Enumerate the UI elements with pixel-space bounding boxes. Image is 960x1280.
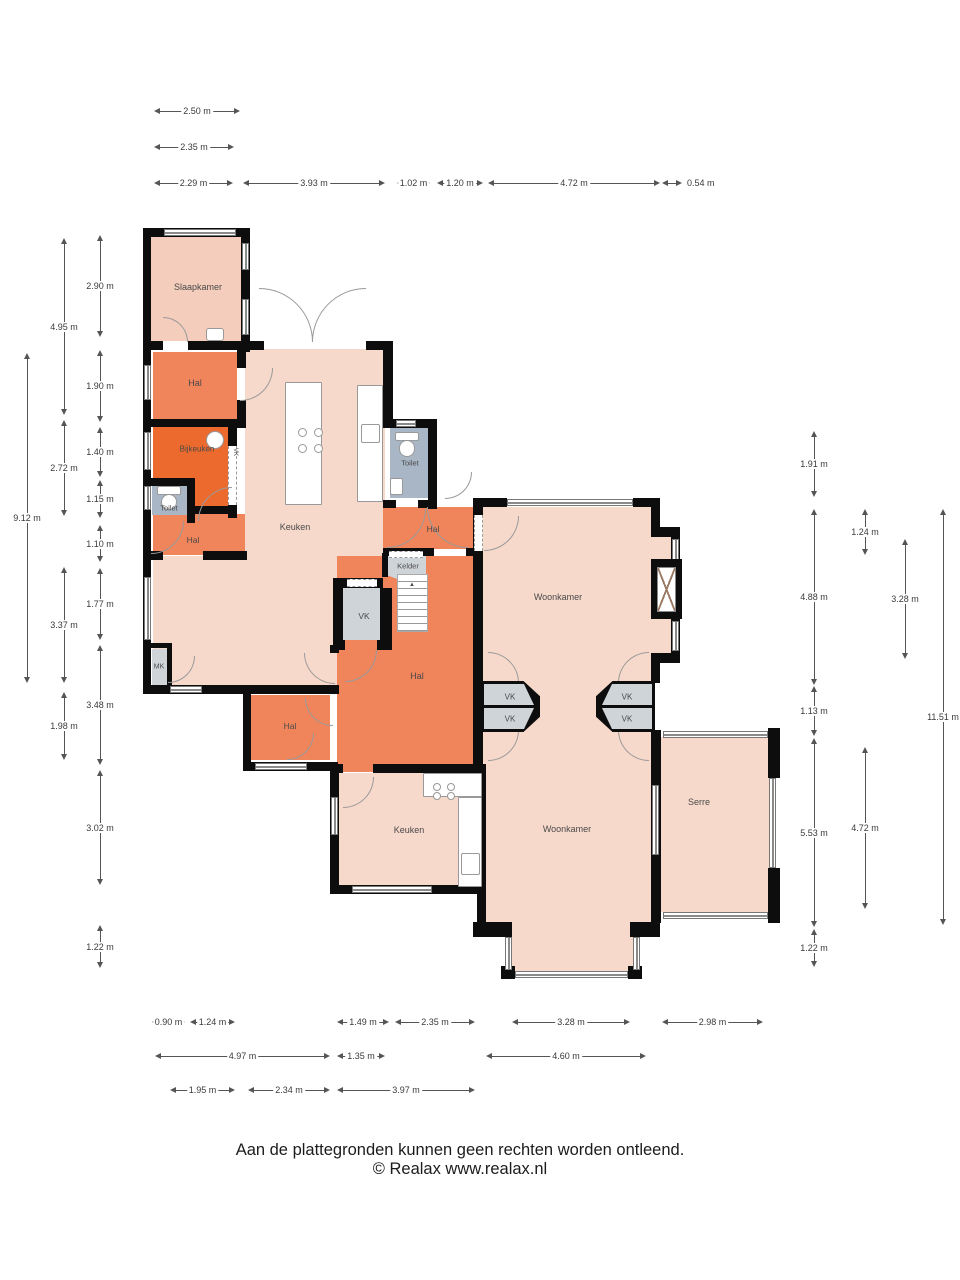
room-label: Hal xyxy=(284,721,297,731)
dimension: 1.98 m xyxy=(59,692,69,760)
dimension-label: 1.91 m xyxy=(798,459,830,469)
room-label: VK xyxy=(505,693,516,702)
room-label: Serre xyxy=(688,797,710,807)
window xyxy=(164,229,236,236)
arrow xyxy=(811,738,817,744)
arrow xyxy=(811,509,817,515)
room-label: Woonkamer xyxy=(543,824,591,834)
arrow xyxy=(811,921,817,927)
dimension-label: 1.24 m xyxy=(197,1017,229,1027)
arrow xyxy=(227,180,233,186)
floor-plan-page: SlaapkamerHalBijkeukenToiletHalKeukenVKT… xyxy=(0,0,960,1280)
arrow xyxy=(61,409,67,415)
room-label: VK xyxy=(622,693,633,702)
wall xyxy=(243,693,251,770)
room-label: Hal xyxy=(427,524,440,534)
door-arc xyxy=(259,288,313,342)
arrow xyxy=(940,919,946,925)
arrow xyxy=(862,747,868,753)
stove-burner xyxy=(298,428,307,437)
dimension-label: 1.20 m xyxy=(444,178,476,188)
wall xyxy=(143,419,245,427)
arrow xyxy=(97,331,103,337)
arrow xyxy=(811,929,817,935)
stove-burner xyxy=(433,783,441,791)
arrow xyxy=(654,180,660,186)
wall xyxy=(330,764,343,773)
arrow xyxy=(97,568,103,574)
arrow xyxy=(229,1019,235,1025)
dimension: 1.13 m xyxy=(809,686,819,736)
dimension: 1.02 m xyxy=(397,178,430,188)
copyright-text: © Realax www.realax.nl xyxy=(0,1160,920,1179)
arrow xyxy=(61,510,67,516)
dashed-opening xyxy=(474,515,483,551)
wall xyxy=(477,893,486,923)
wall xyxy=(651,663,660,683)
wall xyxy=(228,427,237,446)
arrow xyxy=(662,1019,668,1025)
dimension-label: 0.90 m xyxy=(153,1017,185,1027)
dimension: 0.90 m xyxy=(152,1017,185,1027)
dimension-label: 1.77 m xyxy=(84,599,116,609)
dimension: 1.91 m xyxy=(809,431,819,497)
arrow xyxy=(61,677,67,683)
dimension: 2.29 m xyxy=(154,178,233,188)
dimension-label: 2.29 m xyxy=(178,178,210,188)
dimension-label: 2.50 m xyxy=(181,106,213,116)
dimension-label: 3.48 m xyxy=(84,700,116,710)
dimension: 3.37 m xyxy=(59,567,69,683)
arrow xyxy=(154,144,160,150)
arrow xyxy=(940,509,946,515)
arrow xyxy=(337,1053,343,1059)
arrow xyxy=(324,1053,330,1059)
arrow xyxy=(437,180,443,186)
sink-slaapkamer xyxy=(206,328,224,341)
fireplace-inner xyxy=(657,567,676,612)
window xyxy=(242,299,249,335)
room-label: Toilet xyxy=(401,459,419,468)
arrow xyxy=(97,480,103,486)
arrow xyxy=(61,692,67,698)
arrow xyxy=(676,180,682,186)
dimension-label: 1.10 m xyxy=(84,539,116,549)
arrow xyxy=(97,512,103,518)
arrow xyxy=(512,1019,518,1025)
dimension-label: 3.97 m xyxy=(390,1085,422,1095)
dimension-label: 4.88 m xyxy=(798,592,830,602)
dimension: 3.48 m xyxy=(95,645,105,765)
arrow xyxy=(337,1019,343,1025)
arrow xyxy=(170,1087,176,1093)
dashed-opening xyxy=(389,551,423,558)
window xyxy=(505,937,512,970)
arrow xyxy=(469,1019,475,1025)
arrow xyxy=(811,679,817,685)
window xyxy=(144,432,151,470)
dimension: 1.49 m xyxy=(337,1017,389,1027)
dimension: 2.50 m xyxy=(154,106,240,116)
dimension-label: 0.54 m xyxy=(685,178,717,188)
dimension-label: 4.72 m xyxy=(849,823,881,833)
wall xyxy=(768,868,780,923)
room-label: Keuken xyxy=(394,825,425,835)
dimension: 4.72 m xyxy=(860,747,870,909)
dimension-label: 3.28 m xyxy=(889,594,921,604)
arrow xyxy=(395,1019,401,1025)
arrow xyxy=(97,350,103,356)
dimension: 1.24 m xyxy=(190,1017,235,1027)
room-label: Kelder xyxy=(397,562,419,571)
dimension: 1.22 m xyxy=(95,925,105,968)
window xyxy=(515,971,628,978)
stove-burner xyxy=(298,444,307,453)
window xyxy=(144,365,151,400)
arrow xyxy=(902,653,908,659)
room-label: VK xyxy=(358,611,369,621)
wall xyxy=(377,640,392,650)
room-label: VK xyxy=(505,715,516,724)
wall xyxy=(383,341,393,428)
room-label: Toilet xyxy=(160,504,178,513)
dimension: 1.15 m xyxy=(95,480,105,518)
arrow xyxy=(337,1087,343,1093)
dashed-opening xyxy=(347,579,377,587)
arrow xyxy=(811,730,817,736)
arrow xyxy=(469,1087,475,1093)
window xyxy=(144,577,151,640)
dimension-label: 3.93 m xyxy=(298,178,330,188)
arrow xyxy=(190,1019,196,1025)
arrow xyxy=(862,509,868,515)
dimension-label: 2.72 m xyxy=(48,463,80,473)
wall xyxy=(473,556,483,772)
room-fill-erker xyxy=(509,925,633,972)
dimension-label: 2.90 m xyxy=(84,281,116,291)
stove-burner xyxy=(433,792,441,800)
counter-keuken-boven xyxy=(357,385,383,502)
vk-pod-left xyxy=(481,681,540,732)
dimension: 4.60 m xyxy=(486,1051,646,1061)
arrow xyxy=(97,471,103,477)
dimension-label: 3.02 m xyxy=(84,823,116,833)
arrow xyxy=(379,180,385,186)
arrow xyxy=(379,1053,385,1059)
door-arc xyxy=(445,472,472,499)
window xyxy=(331,797,338,835)
dimension-label: 4.97 m xyxy=(227,1051,259,1061)
dimension: 3.97 m xyxy=(337,1085,475,1095)
dimension: 2.35 m xyxy=(395,1017,475,1027)
wall xyxy=(651,527,680,537)
dimension-label: 3.37 m xyxy=(48,620,80,630)
arrow xyxy=(757,1019,763,1025)
room-label: Hal xyxy=(410,671,424,681)
room-label: MK xyxy=(154,664,165,671)
dimension: 4.97 m xyxy=(155,1051,330,1061)
arrow xyxy=(97,416,103,422)
window xyxy=(633,937,640,970)
dimension: 2.90 m xyxy=(95,235,105,337)
sink-keuken-boven xyxy=(361,424,380,443)
wall xyxy=(382,553,388,577)
wc-bowl-toilet2 xyxy=(399,440,415,457)
dimension-label: 1.35 m xyxy=(345,1051,377,1061)
room-label: Woonkamer xyxy=(534,592,582,602)
room-label: Hal xyxy=(187,535,200,545)
arrow xyxy=(97,759,103,765)
arrow xyxy=(97,427,103,433)
stove-burner xyxy=(447,792,455,800)
wall xyxy=(250,341,264,350)
dimension: 1.24 m xyxy=(860,509,870,555)
wall xyxy=(187,478,195,523)
room-fill-serre xyxy=(660,737,770,912)
dimension-label: 1.13 m xyxy=(798,706,830,716)
wall xyxy=(768,728,780,778)
dimension-label: 2.35 m xyxy=(419,1017,451,1027)
room-label: VK xyxy=(232,448,238,456)
window xyxy=(255,763,307,770)
arrow xyxy=(229,1087,235,1093)
arrow xyxy=(862,549,868,555)
arrow xyxy=(662,180,668,186)
wall xyxy=(474,498,507,507)
window xyxy=(242,243,249,270)
dimension-label: 1.02 m xyxy=(398,178,430,188)
arrow xyxy=(228,144,234,150)
window xyxy=(396,420,416,427)
room-label: ▲ xyxy=(409,582,415,588)
window xyxy=(663,912,768,919)
arrow xyxy=(97,525,103,531)
arrow xyxy=(61,567,67,573)
dimension: 1.40 m xyxy=(95,427,105,477)
wall xyxy=(203,551,247,560)
arrow xyxy=(154,108,160,114)
arrow xyxy=(488,180,494,186)
arrow xyxy=(61,420,67,426)
arrow xyxy=(234,108,240,114)
arrow xyxy=(97,770,103,776)
dimension-label: 1.98 m xyxy=(48,721,80,731)
wall xyxy=(143,341,163,350)
arrow xyxy=(61,754,67,760)
dimension: 2.34 m xyxy=(248,1085,330,1095)
arrow xyxy=(811,431,817,437)
dimension-label: 1.90 m xyxy=(84,381,116,391)
wall xyxy=(143,228,151,352)
wall xyxy=(373,764,483,773)
dimension-label: 4.72 m xyxy=(558,178,590,188)
arrow xyxy=(811,491,817,497)
arrow xyxy=(97,962,103,968)
dimension: 11.51 m xyxy=(938,509,948,925)
dimension: 1.90 m xyxy=(95,350,105,422)
dimension: 3.02 m xyxy=(95,770,105,885)
room-label: VK xyxy=(622,715,633,724)
arrow xyxy=(24,677,30,683)
wall xyxy=(383,500,396,508)
arrow xyxy=(97,235,103,241)
arrow xyxy=(97,879,103,885)
arrow xyxy=(486,1053,492,1059)
arrow xyxy=(97,634,103,640)
arrow xyxy=(811,961,817,967)
dimension-label: 1.95 m xyxy=(187,1085,219,1095)
window xyxy=(352,886,432,893)
dimension: 4.72 m xyxy=(488,178,660,188)
arrow xyxy=(640,1053,646,1059)
dimension-label: 2.98 m xyxy=(697,1017,729,1027)
stove-burner xyxy=(314,428,323,437)
vk-pod-right xyxy=(596,681,655,732)
dimension: 2.35 m xyxy=(154,142,234,152)
arrow xyxy=(248,1087,254,1093)
wall xyxy=(330,685,339,693)
arrow xyxy=(97,925,103,931)
arrow xyxy=(243,180,249,186)
wall xyxy=(473,922,512,937)
window xyxy=(144,486,151,510)
dimension-label: 2.35 m xyxy=(178,142,210,152)
wall xyxy=(143,352,151,692)
arrow xyxy=(477,180,483,186)
dimension: 1.10 m xyxy=(95,525,105,562)
arrow xyxy=(902,539,908,545)
dimension: 1.35 m xyxy=(337,1051,385,1061)
window xyxy=(769,778,776,868)
wall xyxy=(330,645,339,653)
dimension-label: 4.60 m xyxy=(550,1051,582,1061)
arrow xyxy=(97,645,103,651)
arrow xyxy=(624,1019,630,1025)
dimension: 5.53 m xyxy=(809,738,819,927)
dimension: 0.54 m xyxy=(662,178,682,188)
dimension: 3.28 m xyxy=(900,539,910,659)
dimension: 3.93 m xyxy=(243,178,385,188)
sink-keuken-beneden xyxy=(461,853,480,875)
arrow xyxy=(155,1053,161,1059)
room-label: Slaapkamer xyxy=(174,282,222,292)
stove-burner xyxy=(314,444,323,453)
wall xyxy=(428,419,437,509)
dimension-label: 1.24 m xyxy=(849,527,881,537)
dimension-label: 4.95 m xyxy=(48,322,80,332)
dimension: 9.12 m xyxy=(22,353,32,683)
room-label: Keuken xyxy=(280,522,311,532)
wall xyxy=(651,653,680,663)
dimension-label: 1.49 m xyxy=(347,1017,379,1027)
dimension: 2.72 m xyxy=(59,420,69,516)
window xyxy=(663,731,768,738)
dimension: 1.95 m xyxy=(170,1085,235,1095)
dimension-label: 2.34 m xyxy=(273,1085,305,1095)
door-arc xyxy=(312,288,366,342)
arrow xyxy=(154,180,160,186)
arrow xyxy=(97,556,103,562)
dimension: 2.98 m xyxy=(662,1017,763,1027)
dimension-label: 1.40 m xyxy=(84,447,116,457)
dimension-label: 1.22 m xyxy=(798,943,830,953)
dimension-label: 5.53 m xyxy=(798,828,830,838)
dimension-label: 11.51 m xyxy=(925,712,960,722)
arrow xyxy=(811,686,817,692)
dimension: 4.95 m xyxy=(59,238,69,415)
disclaimer-text: Aan de plattegronden kunnen geen rechten… xyxy=(0,1141,920,1160)
dimension-label: 1.15 m xyxy=(84,494,116,504)
wall xyxy=(630,922,660,937)
window xyxy=(170,686,202,693)
window xyxy=(507,499,633,506)
floor-plan-drawing: SlaapkamerHalBijkeukenToiletHalKeukenVKT… xyxy=(0,0,960,1280)
sink-toilet2 xyxy=(390,478,403,495)
arrow xyxy=(324,1087,330,1093)
arrow xyxy=(24,353,30,359)
dimension: 4.88 m xyxy=(809,509,819,685)
arrow xyxy=(61,238,67,244)
dimension: 3.28 m xyxy=(512,1017,630,1027)
dimension: 1.20 m xyxy=(437,178,483,188)
dimension: 1.22 m xyxy=(809,929,819,967)
arrow xyxy=(383,1019,389,1025)
room-label: Hal xyxy=(188,378,202,388)
dimension-label: 9.12 m xyxy=(11,513,43,523)
room-label: Bijkeuken xyxy=(180,445,215,454)
window xyxy=(652,785,659,855)
stove-burner xyxy=(447,783,455,791)
window xyxy=(672,621,679,651)
arrow xyxy=(862,903,868,909)
wall xyxy=(237,349,246,368)
dimension-label: 1.22 m xyxy=(84,942,116,952)
dimension: 1.77 m xyxy=(95,568,105,640)
dimension-label: 3.28 m xyxy=(555,1017,587,1027)
